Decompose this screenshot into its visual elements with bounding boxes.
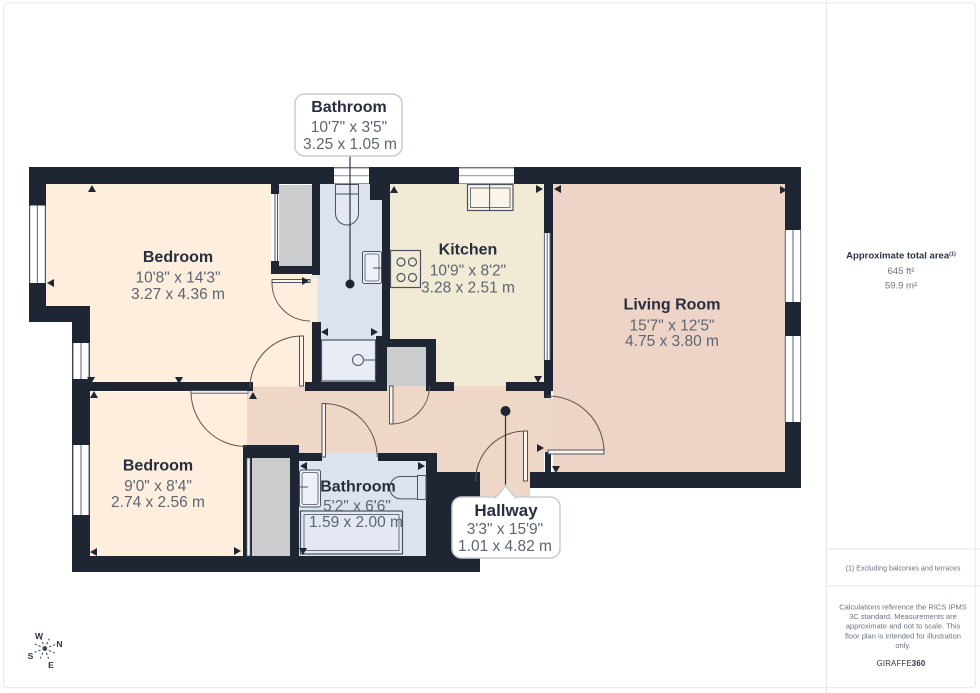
svg-text:Kitchen: Kitchen — [439, 242, 498, 259]
svg-text:Hallway: Hallway — [474, 501, 538, 520]
svg-text:Approximate total area(1): Approximate total area(1) — [846, 251, 956, 262]
svg-text:3C standard. Measurements are: 3C standard. Measurements are — [849, 612, 957, 621]
svg-text:10'7" x 3'5": 10'7" x 3'5" — [311, 119, 387, 136]
svg-text:S: S — [28, 651, 34, 661]
svg-text:Bedroom: Bedroom — [123, 458, 193, 475]
svg-text:3'3" x 15'9": 3'3" x 15'9" — [467, 521, 543, 538]
svg-text:5'2" x 6'6": 5'2" x 6'6" — [323, 498, 391, 515]
svg-text:N: N — [56, 639, 62, 649]
svg-text:1.01 x 4.82 m: 1.01 x 4.82 m — [458, 538, 552, 555]
svg-text:Bathroom: Bathroom — [311, 99, 387, 116]
svg-text:3.25 x 1.05 m: 3.25 x 1.05 m — [303, 136, 397, 153]
svg-text:59.9 m²: 59.9 m² — [885, 281, 917, 292]
svg-text:645 ft²: 645 ft² — [888, 266, 915, 277]
svg-text:1.59 x 2.00 m: 1.59 x 2.00 m — [309, 514, 403, 531]
svg-text:10'8" x 14'3": 10'8" x 14'3" — [135, 270, 220, 287]
svg-text:2.74 x 2.56 m: 2.74 x 2.56 m — [111, 494, 205, 511]
svg-text:3.27 x 4.36 m: 3.27 x 4.36 m — [131, 286, 225, 303]
svg-text:3.28 x 2.51 m: 3.28 x 2.51 m — [421, 280, 515, 297]
svg-text:Calculations reference the RIC: Calculations reference the RICS IPMS — [839, 602, 967, 611]
svg-text:9'0" x 8'4": 9'0" x 8'4" — [124, 478, 192, 495]
svg-text:4.75 x 3.80 m: 4.75 x 3.80 m — [625, 333, 719, 350]
svg-text:Bathroom: Bathroom — [320, 479, 396, 496]
svg-text:(1) Excluding balconies and te: (1) Excluding balconies and terraces — [846, 565, 961, 573]
svg-text:10'9" x 8'2": 10'9" x 8'2" — [430, 263, 506, 280]
svg-text:W: W — [35, 631, 44, 641]
svg-text:E: E — [48, 660, 54, 670]
svg-text:only.: only. — [895, 641, 910, 650]
svg-text:Bedroom: Bedroom — [143, 249, 213, 266]
svg-text:15'7" x 12'5": 15'7" x 12'5" — [629, 318, 714, 335]
svg-text:GIRAFFE360: GIRAFFE360 — [877, 659, 926, 668]
svg-text:floor plan is intended for ill: floor plan is intended for illustration — [845, 631, 961, 640]
svg-text:approximate and not to scale.: approximate and not to scale. This — [846, 622, 961, 631]
svg-text:Living Room: Living Room — [624, 297, 721, 314]
